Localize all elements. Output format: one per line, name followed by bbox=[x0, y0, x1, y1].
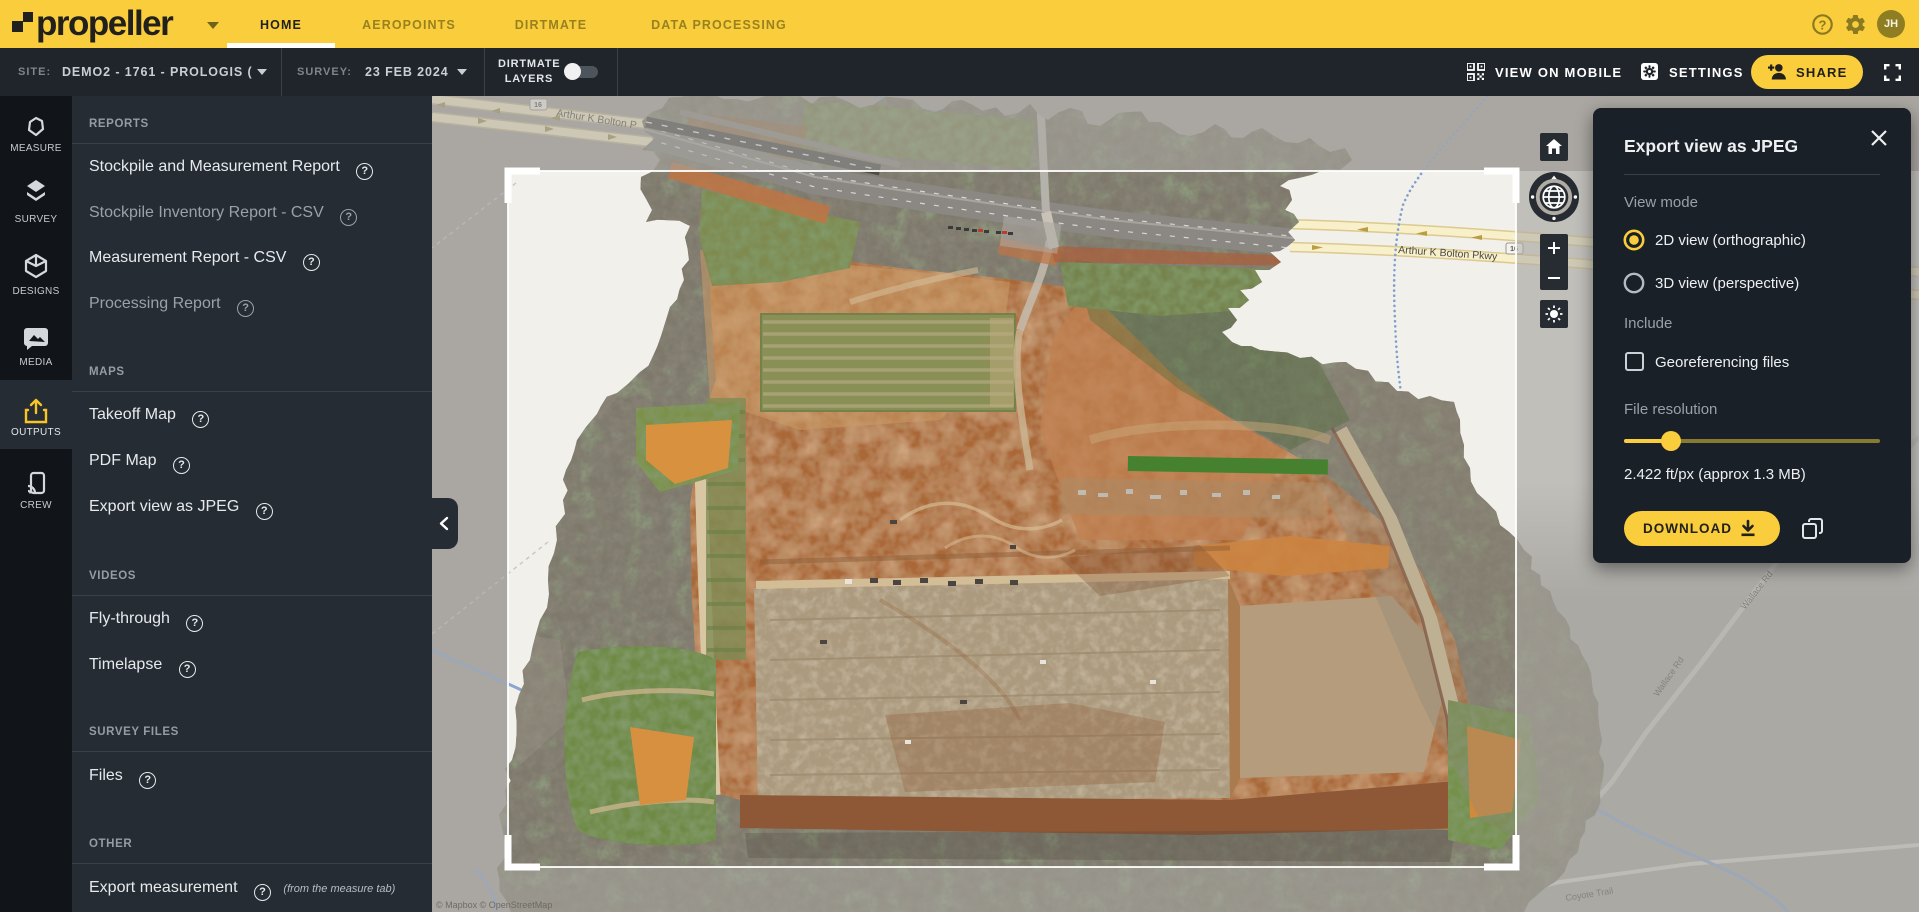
svg-text:?: ? bbox=[1819, 17, 1827, 32]
svg-text:© Mapbox © OpenStreetMap: © Mapbox © OpenStreetMap bbox=[436, 900, 552, 910]
